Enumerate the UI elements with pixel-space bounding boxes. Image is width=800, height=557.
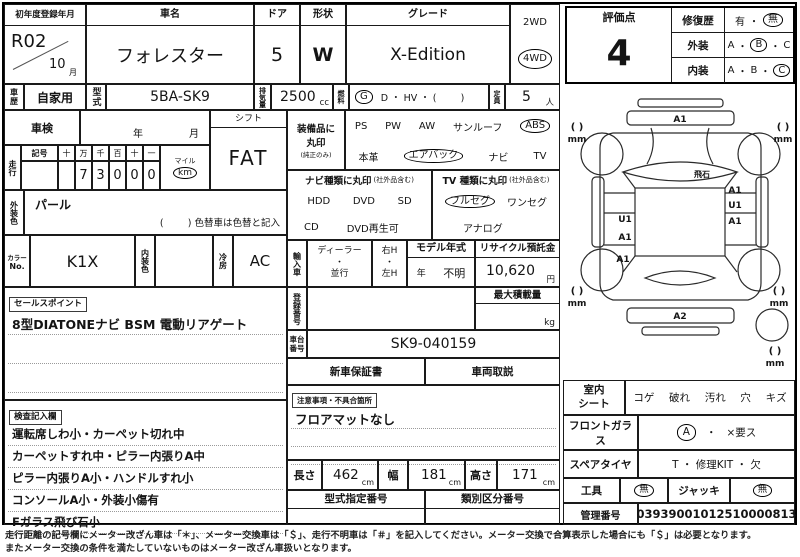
footer-line-1: 走行距離の記号欄にメーター改ざん車は「＊」、メーター交換車は「＄」、走行不明車は… bbox=[5, 530, 797, 543]
equipment-label-note: (純正のみ) bbox=[300, 149, 331, 159]
first-registration-cell: 初年度登録年月 R02 10 月 bbox=[4, 4, 86, 84]
seat-label: 室内 シート bbox=[563, 380, 625, 415]
inspection-line: 運転席しわ小・カーペット切れ中 bbox=[8, 426, 283, 446]
tv-type-block: TV 種類に丸印 (社外品含む) フルセグ ワンセグ アナログ bbox=[432, 170, 560, 240]
length-label: 長さ bbox=[287, 460, 322, 490]
nav-header-note: (社外品含む) bbox=[374, 175, 414, 185]
shape-value: W bbox=[301, 26, 345, 84]
footer-note: 走行距離の記号欄にメーター改ざん車は「＊」、メーター交換車は「＄」、走行不明車は… bbox=[5, 530, 797, 555]
digit-value: 0 bbox=[109, 161, 126, 190]
equip-ps: PS bbox=[355, 121, 367, 132]
interior-c-circled: C bbox=[773, 64, 790, 78]
fuel-cell: G D ・ HV ・ ( ) bbox=[349, 84, 489, 110]
mileage-sign-value bbox=[21, 161, 58, 190]
nav-header: ナビ種類に丸印 bbox=[305, 173, 372, 187]
model-code-value: 5BA-SK9 bbox=[106, 84, 254, 110]
repair-history-label: 修復歴 bbox=[672, 8, 725, 32]
spare-tire-value: T ・ 修理KIT ・ 欠 bbox=[638, 450, 795, 478]
windshield-label: フロントガラス bbox=[563, 415, 638, 450]
digit-value bbox=[58, 161, 75, 190]
import-dealer-cell: ディーラー ・ 並行 bbox=[307, 240, 372, 287]
tv-analog: アナログ bbox=[463, 220, 503, 235]
damage-windshield-note: 飛石 bbox=[693, 170, 710, 179]
shaken-label: 車検 bbox=[4, 110, 80, 145]
car-name-cell: 車名 フォレスター bbox=[86, 4, 254, 84]
color-no-label: カラー No. bbox=[4, 235, 30, 287]
windshield-note: ×要ス bbox=[726, 425, 756, 440]
ext-color-value: パール bbox=[35, 196, 71, 213]
evaluation-score-cell: 評価点 4 bbox=[567, 8, 672, 82]
tools-none-circled: 無 bbox=[634, 484, 654, 497]
mm-bracket-bl: ( ) bbox=[571, 286, 584, 297]
equip-pw: PW bbox=[385, 121, 401, 132]
nav-dvd-play: DVD再生可 bbox=[347, 220, 399, 235]
digit-value: 7 bbox=[75, 161, 92, 190]
mm-label-spare: mm bbox=[766, 359, 785, 369]
rear-right-wheel bbox=[738, 249, 780, 291]
digit-value: 3 bbox=[92, 161, 109, 190]
color-change-note: ( ) 色替車は色替と記入 bbox=[160, 215, 280, 229]
equip-airbag-circled: エアバック bbox=[404, 149, 464, 163]
int-color-label: 内装色 bbox=[135, 235, 155, 287]
registration-label: 登録番号 bbox=[287, 287, 307, 330]
chassis-label: 車台 番号 bbox=[287, 330, 307, 358]
damage-right-2: U1 bbox=[728, 201, 742, 211]
first-registration-year: R02 bbox=[11, 31, 46, 52]
footer-line-2: またメーター交換の条件を満たしていないものはメーター改ざん車扱いとなります。 bbox=[5, 543, 797, 556]
width-label: 幅 bbox=[378, 460, 408, 490]
warranty-cell: 新車保証書 bbox=[287, 358, 425, 385]
height-label: 高さ bbox=[465, 460, 497, 490]
class-number-cell: 類別区分番号 bbox=[425, 490, 560, 525]
model-year-value: 不明 bbox=[443, 265, 465, 281]
digit-value: 0 bbox=[143, 161, 160, 190]
windshield bbox=[623, 162, 737, 181]
notes-block: 注意事項・不具合箇所 フロアマットなし bbox=[287, 385, 560, 460]
import-label: 輸入車 bbox=[287, 240, 307, 287]
shape-cell: 形状 W bbox=[300, 4, 346, 84]
equip-tv: TV bbox=[533, 151, 546, 162]
seat-items: コゲ 破れ 汚れ 穴 キズ bbox=[625, 380, 795, 415]
cooling-value: AC bbox=[233, 235, 287, 287]
capacity-value: 5 bbox=[522, 89, 531, 105]
windshield-value-cell: A ・ ×要ス bbox=[638, 415, 795, 450]
recycle-cell: リサイクル預託金 10,620 円 bbox=[475, 240, 560, 287]
mile-label: マイル bbox=[175, 156, 196, 166]
ext-color-cell: パール ( ) 色替車は色替と記入 bbox=[24, 190, 287, 235]
length-cell: 462 cm bbox=[322, 460, 378, 490]
mm-label-tl: mm bbox=[568, 135, 587, 145]
drive-4wd-circled: 4WD bbox=[518, 49, 552, 69]
inspection-label: 検査記入欄 bbox=[9, 410, 62, 425]
fuel-options: D ・ HV ・ ( ) bbox=[381, 90, 465, 104]
damage-front: A1 bbox=[673, 115, 686, 125]
import-handle-cell: 右H ・ 左H bbox=[372, 240, 407, 287]
equip-sunroof: サンルーフ bbox=[453, 119, 502, 134]
model-year-cell: モデル年式 年 不明 bbox=[407, 240, 475, 287]
damage-left-2: A1 bbox=[618, 233, 631, 243]
spare-tire-label: スペアタイヤ bbox=[563, 450, 638, 478]
drive-2wd: 2WD bbox=[511, 5, 559, 39]
equip-abs-circled: ABS bbox=[520, 119, 550, 133]
evaluation-box: 評価点 4 修復歴 有 ・ 無 外装 A ・ B ・ C bbox=[565, 6, 795, 84]
capacity-unit: 人 bbox=[545, 96, 554, 108]
equipment-items: PS PW AW サンルーフ ABS 本革 エアバック ナビ TV bbox=[345, 110, 560, 170]
fuel-label: 燃料 bbox=[333, 84, 349, 110]
cooling-label: 冷房 bbox=[213, 235, 233, 287]
digit-header: 千 bbox=[92, 145, 109, 161]
mm-bracket-tr: ( ) bbox=[777, 122, 790, 133]
equipment-label-cell: 装備品に 丸印 (純正のみ) bbox=[287, 110, 345, 170]
inspection-line: ピラー内張りA小・ハンドルすれ小 bbox=[8, 468, 283, 490]
shift-label: シフト bbox=[211, 111, 286, 128]
exterior-grade-label: 外装 bbox=[672, 33, 725, 57]
control-number-label: 管理番号 bbox=[563, 503, 638, 525]
max-load-unit: kg bbox=[544, 318, 555, 328]
nav-cd: CD bbox=[304, 222, 319, 233]
digit-header: 万 bbox=[75, 145, 92, 161]
mm-bracket-br: ( ) bbox=[773, 286, 786, 297]
car-damage-diagram: A1 飛石 A1 U1 A1 U1 A1 A1 A2 ( ) mm ( ) mm… bbox=[563, 88, 797, 380]
fuel-g-circled: G bbox=[355, 90, 373, 104]
sales-point-block: セールスポイント 8型DIATONEナビ BSM 電動リアゲート bbox=[4, 287, 287, 400]
model-code-label: 型式 bbox=[86, 84, 106, 110]
sales-point-text: 8型DIATONEナビ BSM 電動リアゲート bbox=[8, 314, 283, 335]
nav-dvd: DVD bbox=[353, 196, 375, 207]
inspection-line: カーペットすれ中・ピラー内張りA中 bbox=[8, 446, 283, 468]
nav-sd: SD bbox=[398, 196, 412, 207]
manual-cell: 車両取説 bbox=[425, 358, 560, 385]
shift-value: FAT bbox=[211, 128, 286, 188]
tools-label: 工具 bbox=[563, 478, 620, 503]
notes-text: フロアマットなし bbox=[291, 409, 556, 429]
sales-point-label: セールスポイント bbox=[9, 297, 87, 312]
tv-header: TV 種類に丸印 bbox=[442, 173, 507, 187]
notes-label: 注意事項・不具合箇所 bbox=[292, 393, 377, 408]
tv-oneseg: ワンセグ bbox=[507, 194, 547, 209]
recycle-value: 10,620 bbox=[486, 263, 535, 279]
spare-tire bbox=[756, 309, 788, 341]
damage-right-3: A1 bbox=[728, 217, 741, 227]
drive-type-cell: 2WD 4WD bbox=[510, 4, 560, 84]
grade-cell: グレード X-Edition bbox=[346, 4, 510, 84]
first-registration-month: 10 bbox=[49, 57, 66, 72]
evaluation-score: 4 bbox=[567, 26, 671, 80]
type-number-cell: 型式指定番号 bbox=[287, 490, 425, 525]
inspection-block: 検査記入欄 運転席しわ小・カーペット切れ中 カーペットすれ中・ピラー内張りA中 … bbox=[4, 400, 287, 525]
color-no-value: K1X bbox=[30, 235, 135, 287]
model-year-year: 年 bbox=[417, 266, 426, 279]
registration-value bbox=[307, 287, 475, 330]
digit-value: 0 bbox=[126, 161, 143, 190]
height-cell: 171 cm bbox=[497, 460, 560, 490]
right-roof-rail bbox=[756, 177, 768, 247]
rear-edge-strip bbox=[642, 327, 719, 335]
equip-aw: AW bbox=[419, 121, 435, 132]
door-label: ドア bbox=[255, 5, 299, 26]
mm-label-tr: mm bbox=[774, 135, 793, 145]
jack-value-cell: 無 bbox=[730, 478, 795, 503]
displacement-cell: 2500 cc bbox=[271, 84, 333, 110]
nav-hdd: HDD bbox=[307, 196, 330, 207]
interior-grade-label: 内装 bbox=[672, 58, 725, 83]
digit-header: 十 bbox=[126, 145, 143, 161]
door-cell: ドア 5 bbox=[254, 4, 300, 84]
equip-navi: ナビ bbox=[488, 149, 508, 164]
recycle-unit: 円 bbox=[546, 273, 555, 285]
inspection-line: コンソールA小・外装小傷有 bbox=[8, 490, 283, 512]
max-load-cell: 最大積載量 kg bbox=[475, 287, 560, 330]
jack-none-circled: 無 bbox=[753, 484, 773, 497]
displacement-label: 排気量 bbox=[254, 84, 271, 110]
left-roof-rail bbox=[592, 177, 604, 247]
evaluation-score-label: 評価点 bbox=[567, 8, 671, 26]
ext-color-label: 外装色 bbox=[4, 190, 24, 235]
chassis-value: SK9-040159 bbox=[307, 330, 560, 358]
damage-left-3: A1 bbox=[616, 255, 629, 265]
displacement-unit: cc bbox=[320, 98, 329, 108]
width-cell: 181 cm bbox=[408, 460, 465, 490]
mm-bracket-spare: ( ) bbox=[769, 346, 782, 357]
capacity-label: 定員 bbox=[489, 84, 505, 110]
exterior-b-circled: B bbox=[750, 38, 767, 52]
car-name-label: 車名 bbox=[87, 5, 253, 26]
car-name-value: フォレスター bbox=[87, 26, 253, 84]
tv-fullseg-circled: フルセグ bbox=[445, 195, 495, 209]
damage-left-1: U1 bbox=[618, 215, 632, 225]
front-edge-strip bbox=[638, 99, 723, 107]
damage-rear: A2 bbox=[673, 312, 686, 322]
auction-sheet: 初年度登録年月 R02 10 月 車名 フォレスター ドア 5 形状 W グレー… bbox=[0, 0, 800, 557]
digit-header: 十 bbox=[58, 145, 75, 161]
tools-value-cell: 無 bbox=[620, 478, 668, 503]
shape-label: 形状 bbox=[301, 5, 345, 26]
control-number-value: 03939001012510000813 bbox=[638, 503, 795, 525]
capacity-cell: 5 人 bbox=[505, 84, 560, 110]
displacement-value: 2500 bbox=[280, 89, 316, 105]
shaken-value-cell: 年 月 bbox=[80, 110, 210, 145]
shaken-month-label: 月 bbox=[189, 125, 199, 140]
shaken-year-label: 年 bbox=[133, 125, 143, 140]
tv-header-note: (社外品含む) bbox=[509, 175, 549, 185]
int-color-value bbox=[155, 235, 213, 287]
grade-label: グレード bbox=[347, 5, 509, 26]
mileage-unit-cell: マイル km bbox=[160, 145, 210, 190]
history-value: 自家用 bbox=[24, 84, 86, 110]
digit-header: 百 bbox=[109, 145, 126, 161]
mileage-label: 走行 bbox=[4, 145, 21, 190]
mileage-sign-header: 記号 bbox=[21, 145, 58, 161]
mm-label-br: mm bbox=[770, 299, 789, 309]
rear-glass bbox=[645, 271, 715, 285]
grade-value: X-Edition bbox=[347, 26, 509, 84]
first-registration-label: 初年度登録年月 bbox=[5, 5, 85, 26]
roof-panel bbox=[635, 188, 725, 256]
windshield-a-circled: A bbox=[677, 424, 696, 440]
equip-leather: 本革 bbox=[359, 149, 379, 164]
repair-no-circled: 無 bbox=[763, 13, 783, 27]
mm-label-bl: mm bbox=[568, 299, 587, 309]
door-value: 5 bbox=[255, 26, 299, 84]
damage-right-1: A1 bbox=[728, 186, 741, 196]
month-suffix: 月 bbox=[69, 67, 77, 78]
mm-bracket-tl: ( ) bbox=[571, 122, 584, 133]
nav-type-block: ナビ種類に丸印 (社外品含む) HDD DVD SD CD DVD再生可 bbox=[287, 170, 432, 240]
shift-cell: シフト FAT bbox=[210, 110, 287, 190]
km-circled: km bbox=[173, 167, 197, 179]
digit-header: 一 bbox=[143, 145, 160, 161]
jack-label: ジャッキ bbox=[668, 478, 730, 503]
history-label: 車歴 bbox=[4, 84, 24, 110]
